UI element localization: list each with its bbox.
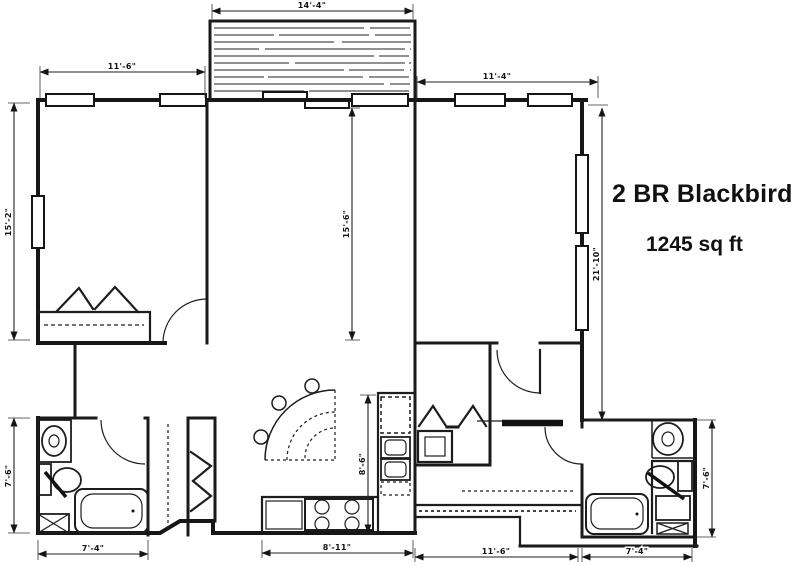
window [455,94,505,106]
dim-label-entry-width: 11'-6" [482,547,510,556]
burner [345,517,359,531]
door-arc-bath-right [545,427,582,464]
dim-label-bedroom-left: 11'-6" [108,62,136,71]
burner [345,500,359,514]
refrigerator [418,431,452,462]
sink [653,423,683,455]
dim-label-bath-right-width: 7'-4" [626,547,649,556]
title-block: 2 BR Blackbird 1245 sq ft [612,180,803,257]
door-arc-bedroom-right [497,350,540,393]
chair [272,396,286,410]
dim-label-bedroom-right: 11'-4" [483,72,511,81]
bifold-door [419,406,446,426]
chair [305,379,319,393]
chair [254,430,268,444]
unit-type: 2 BR [612,180,670,208]
burner [315,500,329,514]
window [352,94,408,106]
bifold-door [191,481,211,511]
unit-area: 1245 sq ft [646,233,803,257]
dishwasher [266,501,302,529]
unit-title: 2 BR Blackbird [612,180,803,209]
dim-label-balcony: 14'-4" [298,1,326,10]
sink [42,426,66,456]
bifold-door [95,287,138,312]
window [576,155,588,233]
balcony-deck [210,21,415,100]
dim-label-bath-right-depth: 7'-6" [702,467,711,490]
fan-table [265,390,335,460]
floor-plan-page: 14'-4" 11'-6" 11'-4" 15'-2" 15'-6" 21'-1… [0,0,803,571]
sliding-door-pane [305,101,349,108]
kitchen [262,393,452,533]
toilet-tank [678,461,692,491]
dim-label-kitchen-width: 8'-11" [323,543,351,552]
bifold-door [57,288,93,311]
dim-label-living-depth: 15'-6" [342,210,351,238]
window [32,196,44,248]
door-arc-bath-left [101,420,145,464]
windows [32,92,588,330]
dim-label-bath-left-depth: 7'-6" [4,465,13,488]
window [160,94,206,106]
floor-plan-drawing: 14'-4" 11'-6" 11'-4" 15'-2" 15'-6" 21'-1… [0,0,803,571]
unit-name: Blackbird [677,180,793,208]
dim-label-left-depth: 15'-2" [4,208,13,236]
door-arc-bedroom-left [163,299,207,343]
dim-label-kitchen-depth: 8'-6" [358,453,367,476]
bathroom-left [38,420,148,533]
dimension-lines: 14'-4" 11'-6" 11'-4" 15'-2" 15'-6" 21'-1… [4,1,716,562]
dim-label-bath-left-width: 7'-4" [82,544,105,553]
bifold-door [191,452,211,481]
window [46,94,94,106]
vanity-cabinet [656,496,690,520]
window [576,246,588,330]
grab-bar [45,472,66,497]
bathroom-right [586,421,695,534]
interior-walls [38,100,695,546]
dim-label-right-depth: 21'-10" [592,247,601,281]
burner [315,517,329,531]
toilet-bowl [646,466,674,488]
window [528,94,572,106]
upper-cabinet [381,397,410,433]
counter-cabinet [381,482,410,495]
bifold-door [459,406,486,426]
doors [101,299,582,491]
sliding-door-pane [263,92,307,99]
dining-set [254,379,335,460]
